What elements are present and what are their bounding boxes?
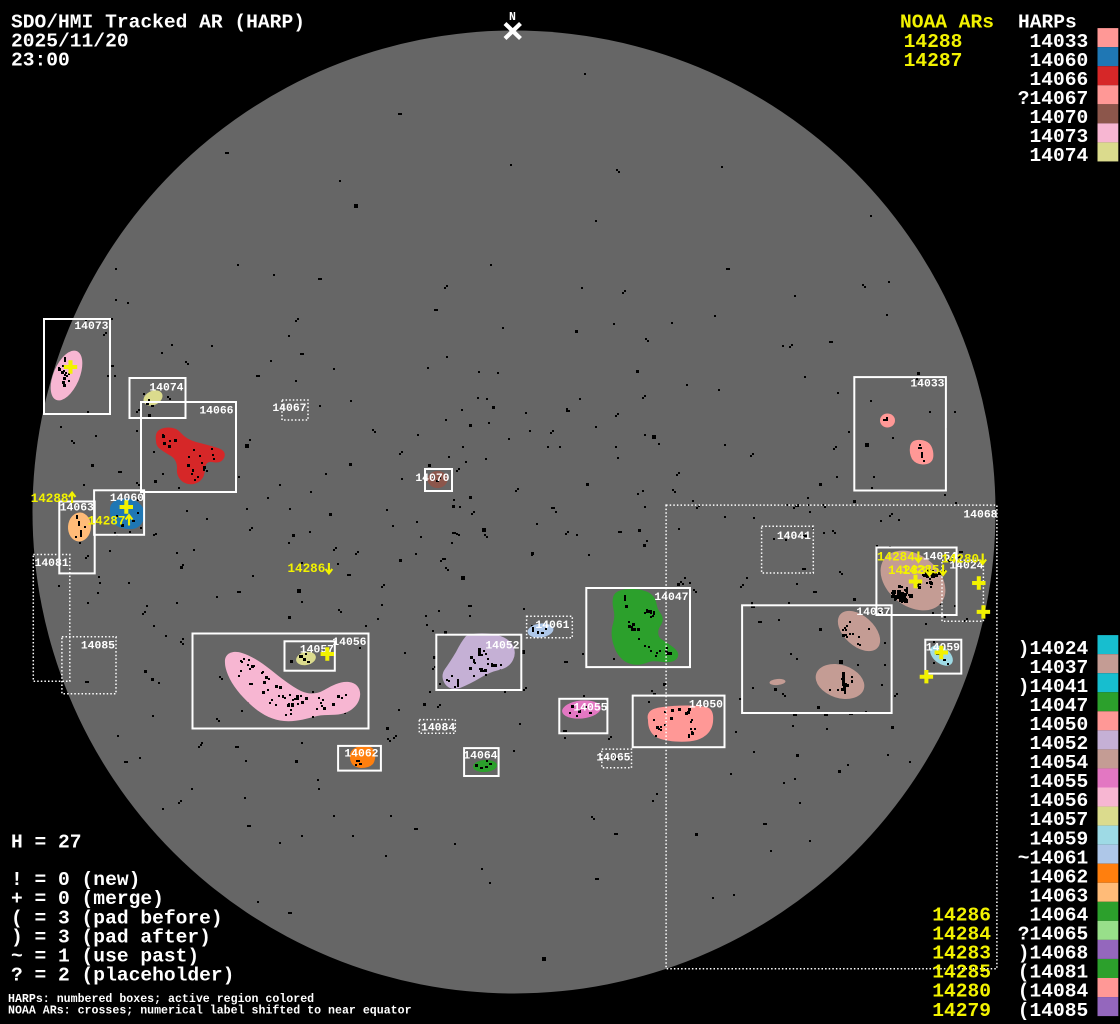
- svg-text:14084: 14084: [421, 723, 455, 735]
- svg-text:NOAA ARs: crosses; numerical l: NOAA ARs: crosses; numerical label shift…: [8, 1004, 412, 1017]
- svg-text:14081: 14081: [35, 558, 69, 570]
- svg-text:14055: 14055: [573, 703, 607, 715]
- svg-text:14041: 14041: [777, 531, 811, 543]
- svg-text:? = 2 (placeholder): ? = 2 (placeholder): [11, 965, 234, 987]
- svg-text:14056: 14056: [332, 637, 366, 649]
- svg-text:14052: 14052: [485, 641, 519, 653]
- svg-text:14067: 14067: [272, 403, 306, 415]
- svg-text:14064: 14064: [463, 751, 497, 763]
- svg-text:14068: 14068: [963, 510, 997, 522]
- svg-text:N: N: [509, 11, 516, 24]
- svg-text:14279: 14279: [932, 1000, 991, 1022]
- svg-text:14033: 14033: [910, 379, 944, 391]
- svg-text:14066: 14066: [199, 406, 233, 418]
- svg-text:14062: 14062: [344, 749, 378, 761]
- svg-text:14073: 14073: [74, 321, 108, 333]
- svg-text:14047: 14047: [654, 592, 688, 604]
- svg-text:23:00: 23:00: [11, 50, 70, 72]
- svg-text:14037: 14037: [856, 607, 890, 619]
- svg-text:14085: 14085: [81, 641, 115, 653]
- svg-text:14280: 14280: [941, 553, 979, 567]
- svg-text:14065: 14065: [596, 752, 630, 764]
- svg-text:14285: 14285: [902, 564, 940, 578]
- svg-text:14287: 14287: [88, 515, 126, 529]
- svg-text:14070: 14070: [415, 473, 449, 485]
- svg-text:14287: 14287: [904, 50, 963, 72]
- svg-text:14050: 14050: [689, 700, 723, 712]
- svg-text:14284: 14284: [877, 551, 915, 565]
- svg-text:14074: 14074: [1030, 145, 1089, 167]
- svg-text:14061: 14061: [535, 620, 569, 632]
- svg-text:14074: 14074: [149, 383, 183, 395]
- svg-text:14286: 14286: [288, 562, 326, 576]
- svg-text:H = 27: H = 27: [11, 832, 82, 854]
- svg-text:(14085: (14085: [1018, 1000, 1089, 1022]
- svg-text:14288: 14288: [31, 492, 69, 506]
